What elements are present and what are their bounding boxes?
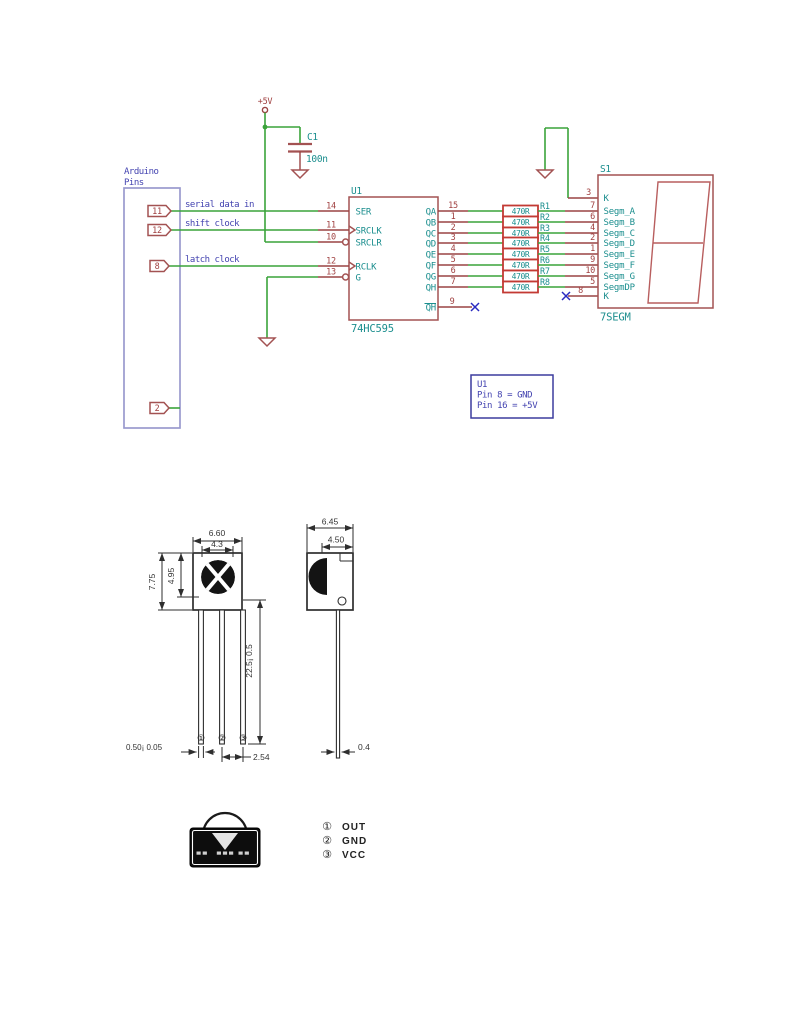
arduino-pin-flag <box>150 403 169 414</box>
resistor-value: 470R <box>512 250 530 259</box>
arduino-pin-number: 2 <box>155 404 160 414</box>
u1-output-name: QB <box>426 219 436 229</box>
resistor-value: 470R <box>512 207 530 216</box>
display-pin-number: 10 <box>585 266 595 276</box>
page: +5V C1 100n Arduino Pins 11serial data i… <box>0 0 791 1024</box>
vcc-label: +5V <box>258 97 273 107</box>
arduino-flag-group: 11serial data in12shift clock8latch cloc… <box>148 200 318 414</box>
u1-output-name: QA <box>426 208 437 218</box>
legend-pin-label: OUT <box>342 822 366 833</box>
u1-left-pin-group: 14SER11SRCLK10SRCLR12RCLK13G <box>318 202 382 284</box>
u1-output-pin-number: 6 <box>451 266 456 276</box>
u1-output-pin-number: 7 <box>451 277 456 287</box>
resistor-value: 470R <box>512 218 530 227</box>
u1-pin-name: RCLK <box>356 263 378 273</box>
clock-mark <box>349 262 355 270</box>
arduino-pin-number: 11 <box>152 207 162 217</box>
u1-output-name: QH <box>426 284 436 294</box>
u1-pin-name: G <box>356 274 361 284</box>
legend-pin-mark: ② <box>322 834 332 847</box>
ground-symbol <box>292 170 308 178</box>
display-pin-name: Segm_A <box>604 207 636 217</box>
display-reference: S1 <box>600 164 611 175</box>
side-lead <box>336 610 339 758</box>
arduino-title2: Pins <box>124 178 144 188</box>
dim-side-width: 6.45 <box>322 517 339 527</box>
note-line: U1 <box>477 380 487 390</box>
resistor-network-group: QA15470RR1QB1470RR2QC2470RR3QD3470RR4QE4… <box>426 201 598 294</box>
display-pin-name: Segm_B <box>604 218 635 228</box>
display-pin-group: 3K7Segm_A6Segm_B4Segm_C2Segm_D1Segm_E9Se… <box>578 188 635 302</box>
capacitor-ref: C1 <box>307 132 318 143</box>
display-pin-name: Segm_C <box>604 229 635 239</box>
display-pin-number: 8 <box>578 286 583 296</box>
net-label: shift clock <box>185 219 240 229</box>
pinout-legend-group: ①OUT②GND③VCC <box>322 820 367 861</box>
ground-symbol <box>537 170 553 178</box>
dim-lens-width: 4.3 <box>211 539 223 549</box>
dim-pitch: 2.54 <box>253 752 270 762</box>
display-pin-name: Segm_F <box>604 261 635 271</box>
arduino-pin-number: 8 <box>155 262 160 272</box>
u1-pin-number: 12 <box>326 257 336 267</box>
dim-front-width: 6.60 <box>209 528 226 538</box>
dim-front-height: 7.75 <box>147 573 157 590</box>
capacitor-value: 100n <box>306 154 328 165</box>
display-pin-name: Segm_G <box>604 272 635 282</box>
clock-mark <box>349 226 355 234</box>
u1-output-name: QC <box>426 230 436 240</box>
display-pin-number: 2 <box>590 233 595 243</box>
dim-side-lens: 4.50 <box>328 535 345 545</box>
net-label: latch clock <box>185 255 240 265</box>
u1-reference: U1 <box>351 186 362 197</box>
u1-output-pin-number: 3 <box>451 233 456 243</box>
lead-pin-mark: ② <box>218 734 226 744</box>
front-pin-mark-group: ①②③ <box>197 734 247 744</box>
dim-lead-width: 0.50¡ 0.05 <box>126 743 163 752</box>
legend-pin-label: GND <box>342 836 367 847</box>
front-lead-1 <box>199 610 204 744</box>
dim-lens-height: 4.95 <box>166 567 176 584</box>
u1-pin-number: 13 <box>326 268 336 278</box>
lead-pin-mark: ③ <box>239 734 247 744</box>
display-pin-name: K <box>604 292 610 302</box>
u1-pin-name: SER <box>356 208 372 218</box>
u1-pin-name: SRCLK <box>356 227 383 237</box>
arduino-title: Arduino <box>124 167 159 177</box>
resistor-value: 470R <box>512 283 530 292</box>
resistor-value: 470R <box>512 272 530 281</box>
u1-value: 74HC595 <box>351 323 394 335</box>
inverting-bubble <box>343 274 349 280</box>
display-pin-number: 6 <box>590 212 595 222</box>
note-line: Pin 16 = +5V <box>477 401 538 411</box>
qhbar-pin-name: QH <box>426 304 436 314</box>
page-canvas: +5V C1 100n Arduino Pins 11serial data i… <box>0 0 791 1024</box>
inverting-bubble <box>343 239 349 245</box>
u1-output-name: QF <box>426 262 436 272</box>
u1-pin-number: 14 <box>326 202 336 212</box>
u1-output-name: QG <box>426 273 436 283</box>
note-line: Pin 8 = GND <box>477 391 532 401</box>
display-pin-number: 5 <box>590 277 595 287</box>
vcc-symbol-circle <box>262 107 267 112</box>
u1-output-pin-number: 5 <box>451 255 456 265</box>
dim-lead-thickness: 0.4 <box>358 742 370 752</box>
display-pin-name: Segm_D <box>604 239 635 249</box>
legend-pin-label: VCC <box>342 850 366 861</box>
legend-pin-mark: ③ <box>322 848 332 861</box>
qhbar-pin-number: 9 <box>450 297 455 307</box>
resistor-value: 470R <box>512 261 530 270</box>
u1-output-name: QE <box>426 251 436 261</box>
u1-pin-name: SRCLR <box>356 239 383 249</box>
u1-pin-number: 11 <box>326 221 336 231</box>
side-mount-hole <box>338 597 346 605</box>
lead-pin-mark: ① <box>197 734 205 744</box>
front-lead-2 <box>220 610 225 744</box>
display-pin-number: 4 <box>590 223 595 233</box>
display-pin-number: 7 <box>590 201 595 211</box>
front-lens <box>201 560 235 594</box>
u1-output-pin-number: 4 <box>451 244 456 254</box>
u1-pin-number: 10 <box>326 233 336 243</box>
display-pin-number: 3 <box>586 188 591 198</box>
dim-lead-length: 22.5¡ 0.5 <box>244 644 254 678</box>
net-label: serial data in <box>185 200 254 210</box>
display-value: 7SEGM <box>600 312 631 324</box>
arduino-pin-flag <box>150 261 169 272</box>
u1-output-pin-number: 15 <box>448 201 458 211</box>
arduino-pin-number: 12 <box>152 226 162 236</box>
display-pin-name: K <box>604 194 610 204</box>
u1-output-name: QD <box>426 240 436 250</box>
display-pin-name: Segm_E <box>604 250 635 260</box>
legend-pin-mark: ① <box>322 820 332 833</box>
u1-output-pin-number: 1 <box>451 212 456 222</box>
u1-output-pin-number: 2 <box>451 223 456 233</box>
resistor-value: 470R <box>512 239 530 248</box>
ground-symbol <box>259 338 275 346</box>
display-pin-number: 1 <box>590 244 595 254</box>
display-pin-number: 9 <box>590 255 595 265</box>
